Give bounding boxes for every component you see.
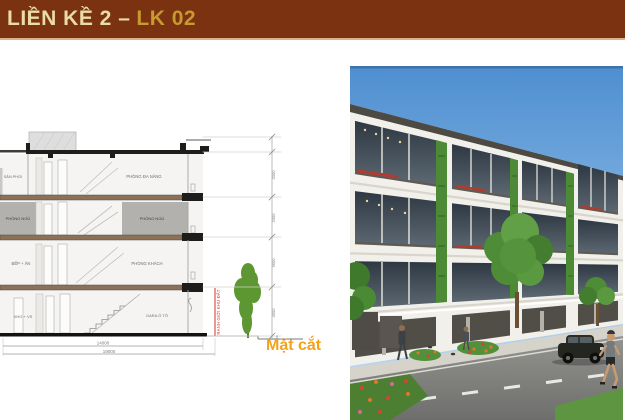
dim-height-1: 3300 xyxy=(271,170,276,180)
bird xyxy=(451,353,455,356)
room-label-f2-left: PHÒNG NGỦ xyxy=(6,216,31,221)
section-caption: Mặt cắt xyxy=(266,337,321,355)
dim-height-3: 3600 xyxy=(271,258,276,268)
dim-height-2: 3300 xyxy=(271,213,276,223)
bottom-dimension-lines: 14000 19000 xyxy=(1,338,217,356)
dim-height-4: 4500 xyxy=(271,308,276,318)
room-label-attic-left: SÂN PHƠI xyxy=(4,174,22,179)
room-label-f1-left: BẾP + ĂN xyxy=(12,261,31,266)
room-label-attic-right: PHÒNG ĐA NĂNG xyxy=(126,174,161,179)
land-boundary-label: RANH GIỚI KHU ĐẤT xyxy=(216,289,221,334)
room-label-ground-right: GARA Ô TÔ xyxy=(146,313,168,318)
room-label-f1-right: PHÒNG KHÁCH xyxy=(131,261,162,266)
townhouse-unit-4 xyxy=(578,164,618,294)
cross-section-drawing: SÂN PHƠI PHÒNG ĐA NĂNG PHÒNG NGỦ PHÒNG N… xyxy=(0,0,345,420)
room-label-f2-right: PHÒNG NGỦ xyxy=(140,216,165,221)
land-boundary: RANH GIỚI KHU ĐẤT xyxy=(215,288,221,336)
room-label-ground-left: KHO + VS xyxy=(14,314,33,319)
bird xyxy=(428,346,432,349)
slide: LIỀN KỀ 2 – LK 02 xyxy=(0,0,625,420)
ground-line xyxy=(0,333,207,337)
tree xyxy=(234,263,261,338)
dim-width-total: 19000 xyxy=(103,349,116,354)
townhouse-render-photo xyxy=(350,66,623,420)
dim-width-main: 14000 xyxy=(97,341,110,346)
